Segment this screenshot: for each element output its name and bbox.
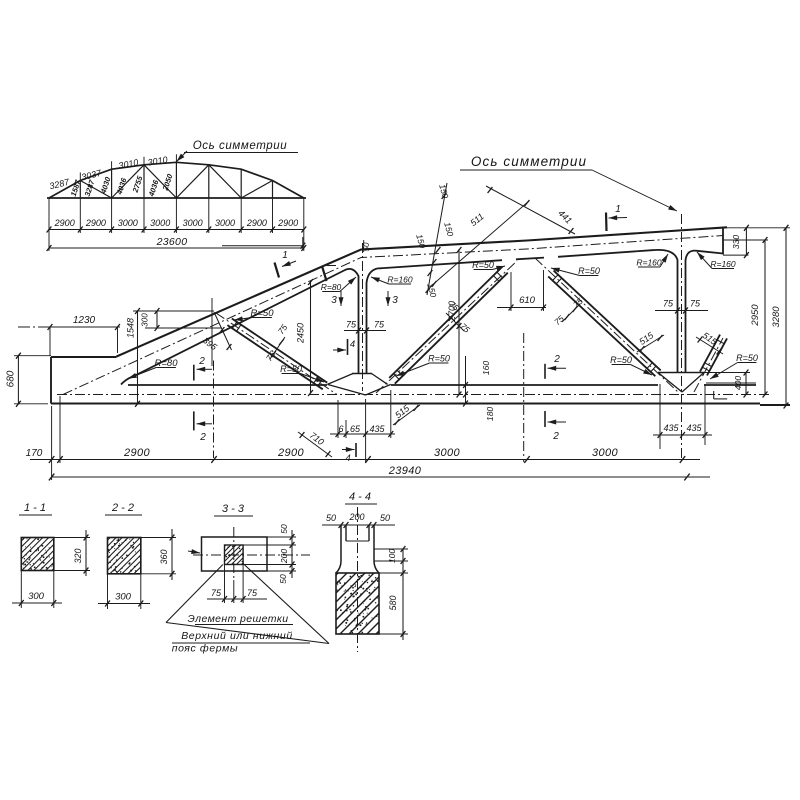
svg-text:300: 300 [28,591,45,602]
svg-text:2900: 2900 [123,447,151,459]
svg-text:Ось симметрии: Ось симметрии [193,140,288,152]
svg-text:R=50: R=50 [610,355,632,365]
svg-text:200: 200 [279,549,289,564]
svg-text:R=50: R=50 [428,354,450,364]
svg-text:50: 50 [380,513,390,523]
svg-text:65: 65 [350,424,361,434]
svg-text:2 - 2: 2 - 2 [111,502,134,514]
svg-text:23600: 23600 [156,236,188,248]
svg-text:3000: 3000 [215,218,235,228]
svg-text:200: 200 [348,512,364,522]
svg-text:320: 320 [73,548,83,563]
svg-text:3000: 3000 [150,218,170,228]
svg-text:300: 300 [115,592,132,603]
svg-text:75: 75 [663,299,674,309]
svg-text:330: 330 [731,235,741,249]
svg-text:1: 1 [282,250,288,261]
svg-text:435: 435 [663,423,679,433]
svg-text:180: 180 [485,407,495,421]
svg-text:R=50: R=50 [578,266,600,276]
svg-text:2: 2 [199,432,206,443]
svg-text:2900: 2900 [246,218,267,228]
svg-text:300: 300 [141,313,150,327]
svg-text:2: 2 [552,431,559,442]
svg-text:680: 680 [6,370,17,387]
svg-text:23940: 23940 [388,465,422,477]
svg-text:2900: 2900 [85,218,106,228]
svg-text:170: 170 [26,448,43,459]
svg-text:R=160: R=160 [710,259,736,269]
svg-text:3000: 3000 [434,447,461,459]
svg-text:610: 610 [519,295,536,306]
svg-text:6: 6 [338,424,343,434]
svg-text:4 - 4: 4 - 4 [349,491,371,503]
svg-text:4: 4 [345,453,350,464]
svg-text:360: 360 [159,549,169,564]
svg-text:1 - 1: 1 - 1 [24,502,46,514]
svg-text:50: 50 [279,524,289,534]
svg-text:1548: 1548 [126,318,136,338]
svg-text:1230: 1230 [73,315,96,326]
svg-text:75: 75 [247,588,258,598]
svg-text:75: 75 [374,320,385,330]
svg-text:3: 3 [392,295,398,306]
svg-text:R=50: R=50 [736,353,758,363]
svg-text:75: 75 [690,299,701,309]
svg-text:Верхний или нижний: Верхний или нижний [181,630,293,642]
svg-text:R=160: R=160 [636,258,662,268]
svg-text:Ось симметрии: Ось симметрии [471,154,587,169]
svg-text:R=80: R=80 [321,282,342,292]
svg-text:3: 3 [331,295,337,306]
svg-text:50: 50 [326,513,336,523]
svg-text:580: 580 [388,595,398,610]
svg-text:3000: 3000 [183,218,203,228]
svg-text:435: 435 [369,424,385,434]
svg-text:75: 75 [211,588,222,598]
svg-text:пояс фермы: пояс фермы [172,643,239,655]
svg-text:100: 100 [387,549,397,563]
svg-text:160: 160 [481,361,491,375]
svg-text:3 - 3: 3 - 3 [222,503,245,515]
svg-text:4: 4 [350,339,355,350]
svg-text:2: 2 [553,354,560,365]
svg-text:75: 75 [346,320,357,330]
svg-text:Элемент решетки: Элемент решетки [187,613,288,625]
svg-text:R=50: R=50 [472,260,494,270]
svg-text:3280: 3280 [771,306,782,328]
svg-text:2450: 2450 [296,323,306,344]
svg-text:2950: 2950 [750,304,761,327]
svg-text:1: 1 [615,204,621,215]
svg-text:50: 50 [362,242,371,251]
svg-text:435: 435 [686,423,702,433]
svg-text:2900: 2900 [54,218,75,228]
svg-text:50: 50 [278,574,288,584]
svg-text:R=160: R=160 [387,275,413,285]
svg-text:3000: 3000 [118,218,138,228]
svg-text:2900: 2900 [277,218,298,228]
svg-text:R=50: R=50 [280,364,302,374]
svg-text:2: 2 [198,356,205,367]
svg-text:3000: 3000 [592,447,619,459]
svg-text:2900: 2900 [277,447,305,459]
